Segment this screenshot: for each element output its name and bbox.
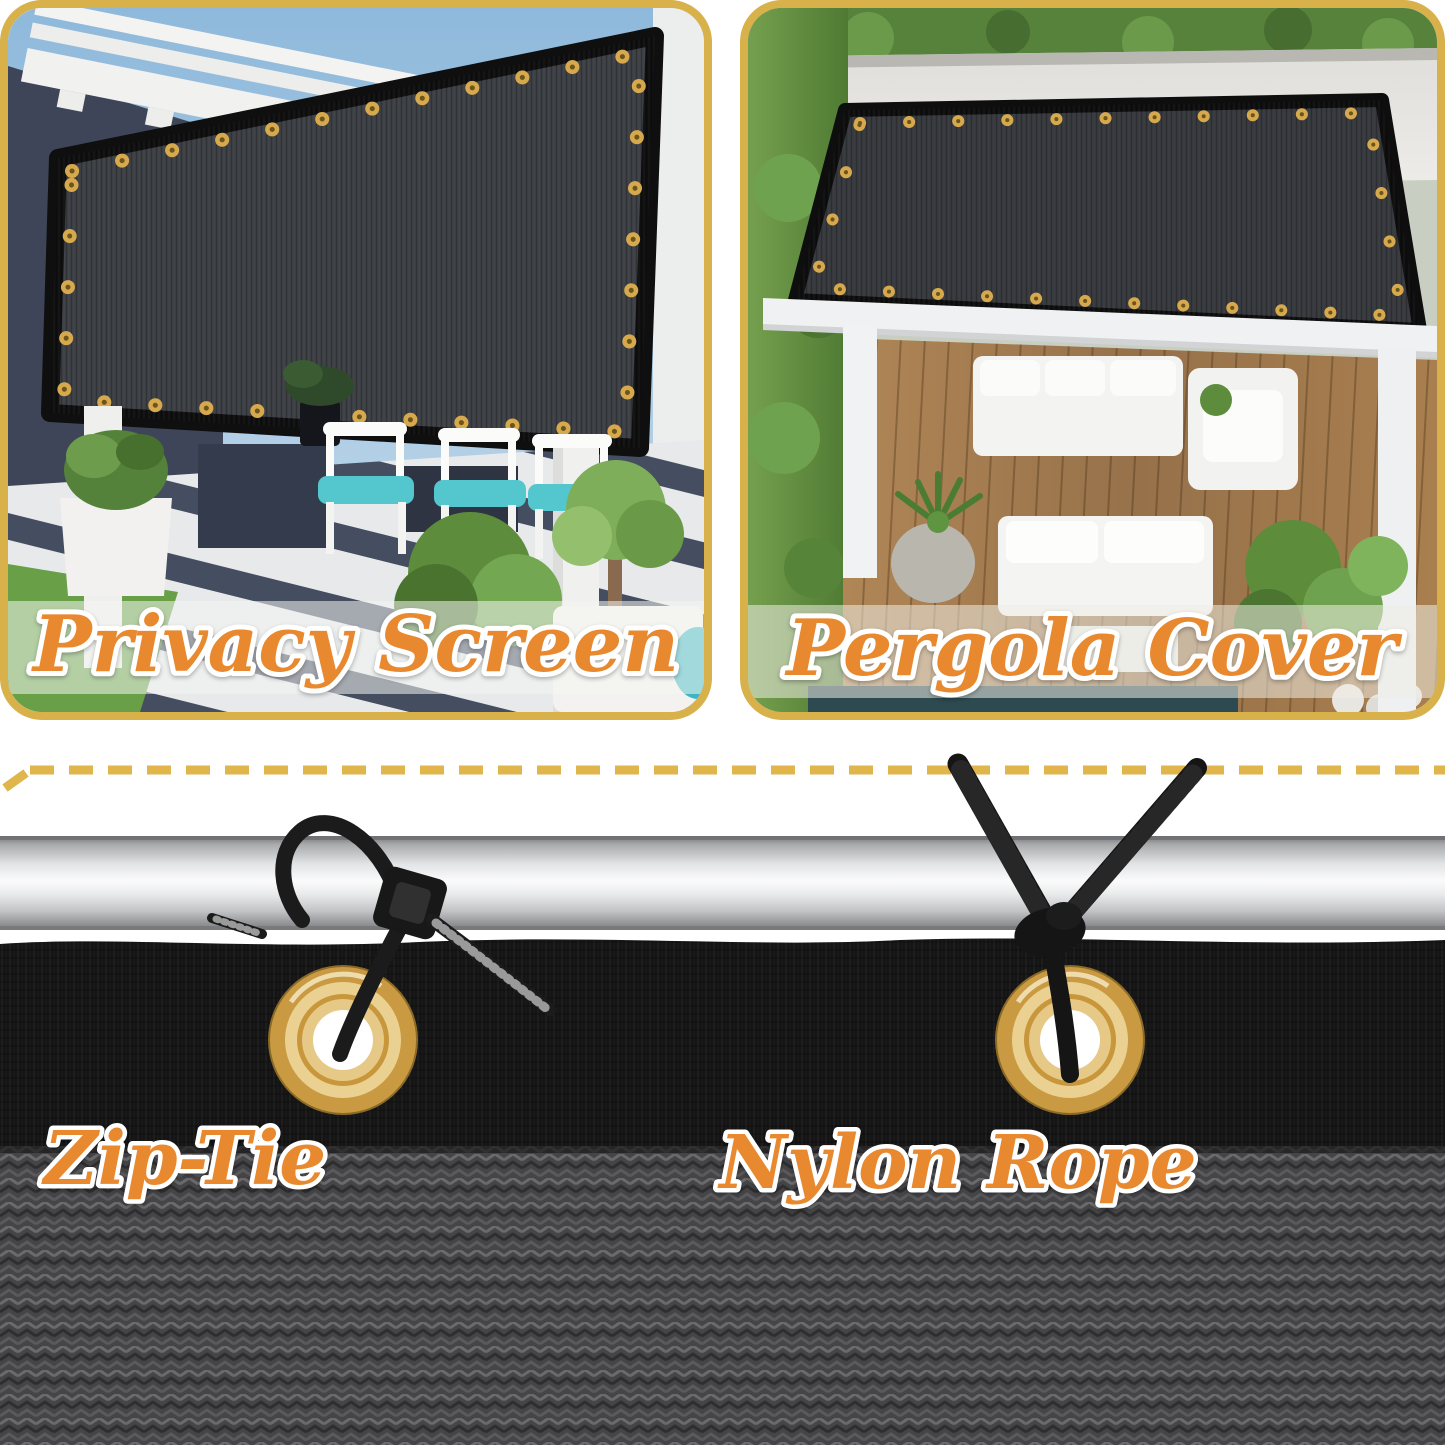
pergola-cover-mesh <box>795 100 1420 330</box>
nylon-rope-label: Nylon Rope <box>717 1120 1196 1206</box>
privacy-screen-caption: Privacy Screen <box>31 599 679 690</box>
privacy-screen-photo-panel: Privacy Screen <box>0 0 712 720</box>
pergola-cover-photo-panel: Pergola Cover <box>740 0 1445 720</box>
product-collage: Privacy Screen <box>0 0 1445 1445</box>
fastening-scene: Zip-Tie Nylon Rope <box>0 722 1445 1445</box>
privacy-screen-scene: Privacy Screen <box>8 8 704 712</box>
pergola-cover-scene: Pergola Cover <box>748 8 1437 712</box>
fastening-detail-section: Zip-Tie Nylon Rope <box>0 722 1445 1445</box>
pergola-post-left <box>843 326 877 578</box>
pergola-cover-caption: Pergola Cover <box>784 603 1402 694</box>
zip-tie-label: Zip-Tie <box>41 1116 327 1202</box>
